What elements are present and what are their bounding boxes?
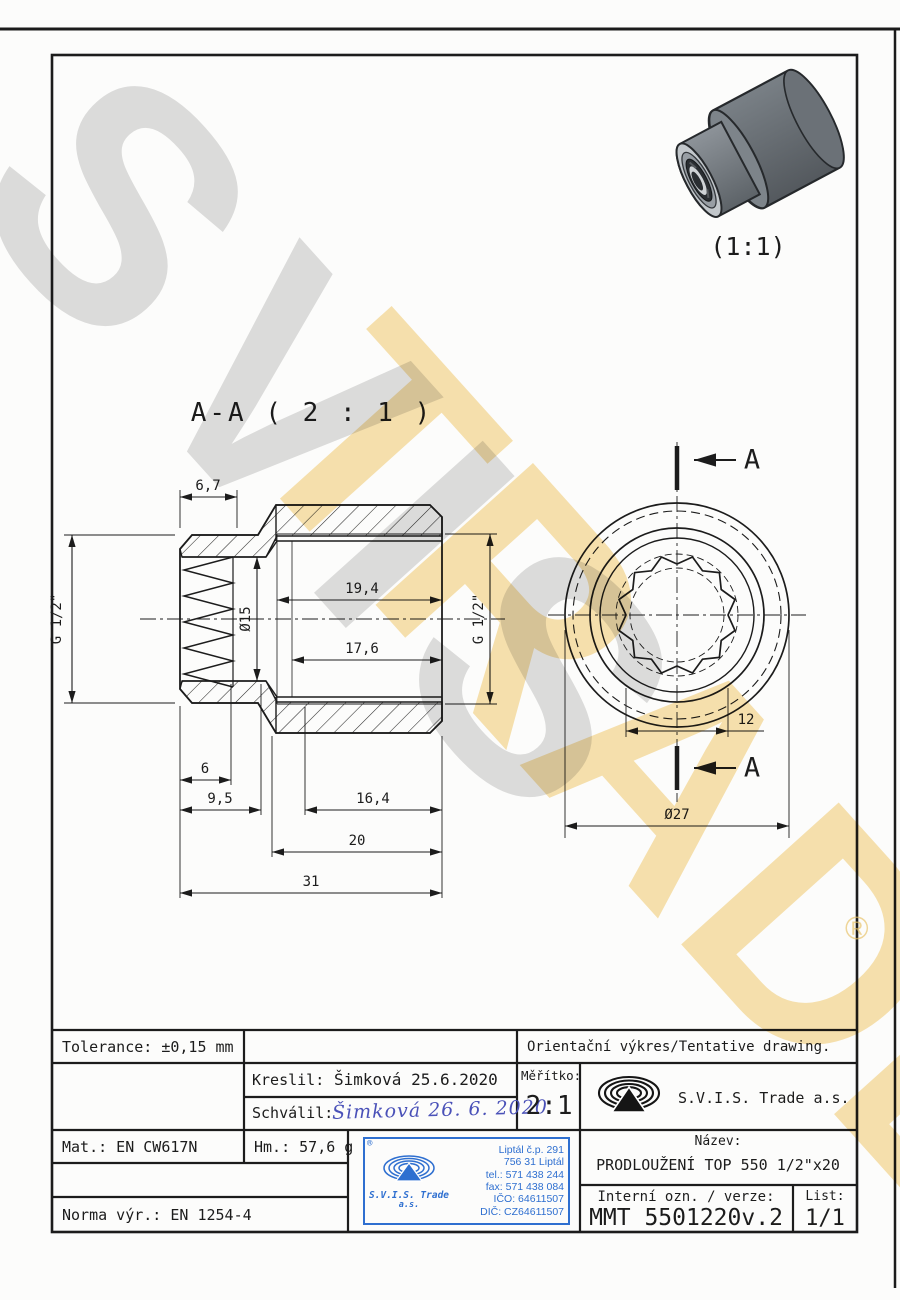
list-value: 1/1 bbox=[805, 1206, 845, 1231]
list-label: List: bbox=[805, 1189, 844, 1204]
stamp-left: ® S.V.I.S. Trade a.s. bbox=[365, 1153, 453, 1209]
stamp-address: Liptál č.p. 291 756 31 Liptál tel.: 571 … bbox=[453, 1144, 568, 1218]
company-stamp: ® S.V.I.S. Trade a.s. Liptál č.p. 291 75… bbox=[363, 1137, 570, 1225]
section-title: A-A ( 2 : 1 ) bbox=[191, 398, 434, 428]
dim-g12-right: G 1/2" bbox=[471, 594, 487, 645]
stamp-dic: DIČ: CZ64611507 bbox=[453, 1206, 564, 1218]
dim-g12-left: G 1/2" bbox=[49, 594, 65, 645]
stamp-address1: Liptál č.p. 291 bbox=[453, 1144, 564, 1156]
stamp-as: a.s. bbox=[365, 1201, 453, 1210]
drawing-sheet: A-A ( 2 : 1 ) 6,7 G 1/2" Ø15 19,4 17,6 G… bbox=[0, 0, 900, 1288]
dim-31: 31 bbox=[303, 874, 320, 890]
dim-dia15: Ø15 bbox=[238, 606, 254, 631]
dim-12: 12 bbox=[738, 712, 755, 728]
nazev-label: Název: bbox=[695, 1134, 742, 1149]
kreslil-label: Kreslil: bbox=[252, 1071, 324, 1089]
dim-9-5: 9,5 bbox=[207, 791, 232, 807]
iso-scale-label: (1:1) bbox=[710, 232, 785, 261]
dim-17-6: 17,6 bbox=[345, 641, 379, 657]
iso-view bbox=[662, 63, 855, 235]
nazev-value: PRODLOUŽENÍ TOP 550 1/2"x20 bbox=[596, 1156, 840, 1174]
interni-label: Interní ozn. / verze: bbox=[597, 1189, 774, 1205]
meritko-value: 2:1 bbox=[526, 1091, 573, 1121]
dim-19-4: 19,4 bbox=[345, 581, 379, 597]
schvalil-label: Schválil: bbox=[252, 1104, 333, 1122]
end-view bbox=[548, 442, 806, 838]
kreslil-value: Šimková 25.6.2020 bbox=[334, 1070, 498, 1089]
tolerance-text: Tolerance: ±0,15 mm bbox=[62, 1038, 234, 1056]
dim-6: 6 bbox=[201, 761, 209, 777]
stamp-tel: tel.: 571 438 244 bbox=[453, 1169, 564, 1181]
interni-value: MMT 5501220v.2 bbox=[589, 1205, 783, 1231]
dim-dia27: Ø27 bbox=[664, 807, 689, 823]
dim-6-7: 6,7 bbox=[195, 478, 220, 494]
stamp-fax: fax: 571 438 084 bbox=[453, 1181, 564, 1193]
company-logo bbox=[599, 1077, 659, 1112]
tentative-drawing-note: Orientační výkres/Tentative drawing. bbox=[527, 1039, 830, 1055]
section-view bbox=[64, 490, 505, 898]
dim-16-4: 16,4 bbox=[356, 791, 390, 807]
weight-text: Hm.: 57,6 g bbox=[254, 1138, 353, 1156]
meritko-label: Měřítko: bbox=[521, 1068, 581, 1083]
stamp-ico: IČO: 64611507 bbox=[453, 1193, 564, 1205]
cut-label-a-top: A bbox=[744, 445, 760, 476]
stamp-logo bbox=[381, 1153, 437, 1187]
material-text: Mat.: EN CW617N bbox=[62, 1138, 197, 1156]
company-name: S.V.I.S. Trade a.s. bbox=[678, 1089, 850, 1107]
norma-text: Norma výr.: EN 1254-4 bbox=[62, 1206, 252, 1224]
stamp-address2: 756 31 Liptál bbox=[453, 1156, 564, 1168]
dim-20: 20 bbox=[349, 833, 366, 849]
stamp-registered-icon: ® bbox=[367, 1139, 372, 1149]
cut-label-a-bottom: A bbox=[744, 753, 760, 784]
watermark-registered-icon: ® bbox=[845, 910, 869, 947]
